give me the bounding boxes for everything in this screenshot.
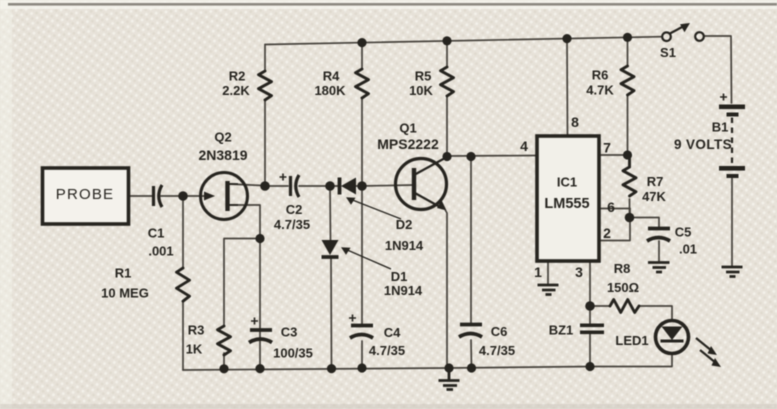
svg-text:10 MEG: 10 MEG <box>101 286 149 301</box>
svg-text:6: 6 <box>607 199 615 215</box>
svg-text:4.7/35: 4.7/35 <box>369 343 405 358</box>
svg-text:180K: 180K <box>314 83 346 98</box>
svg-text:47K: 47K <box>642 189 666 204</box>
svg-text:B1: B1 <box>712 120 729 135</box>
svg-text:4: 4 <box>520 138 528 154</box>
svg-text:C4: C4 <box>384 325 401 340</box>
svg-text:IC1: IC1 <box>557 175 577 190</box>
svg-text:1N914: 1N914 <box>384 283 423 298</box>
svg-text:4.7/35: 4.7/35 <box>479 343 515 358</box>
svg-text:1N914: 1N914 <box>385 238 424 253</box>
svg-text:BZ1: BZ1 <box>549 323 574 338</box>
svg-text:R6: R6 <box>592 68 609 83</box>
svg-text:.001: .001 <box>148 244 173 259</box>
svg-text:Q1: Q1 <box>399 121 416 136</box>
svg-text:4.7/35: 4.7/35 <box>274 217 310 232</box>
svg-text:R1: R1 <box>115 266 132 281</box>
svg-text:9 VOLTS: 9 VOLTS <box>674 137 732 152</box>
svg-text:150Ω: 150Ω <box>607 280 639 295</box>
svg-text:C1: C1 <box>148 226 165 241</box>
svg-text:R7: R7 <box>647 174 664 189</box>
svg-text:1: 1 <box>534 264 542 280</box>
svg-text:2N3819: 2N3819 <box>198 147 247 163</box>
svg-text:MPS2222: MPS2222 <box>377 136 439 152</box>
svg-text:PROBE: PROBE <box>56 186 115 203</box>
svg-text:3: 3 <box>575 264 583 280</box>
svg-text:D2: D2 <box>396 217 413 232</box>
svg-text:D1: D1 <box>391 269 408 284</box>
svg-text:S1: S1 <box>660 45 676 60</box>
svg-text:C5: C5 <box>675 225 692 240</box>
svg-text:8: 8 <box>571 114 579 130</box>
svg-text:C3: C3 <box>281 325 298 340</box>
svg-text:R4: R4 <box>323 69 340 84</box>
svg-text:LED1: LED1 <box>615 333 648 348</box>
svg-text:R3: R3 <box>188 323 205 338</box>
svg-text:1K: 1K <box>186 342 203 357</box>
svg-text:2.2K: 2.2K <box>222 83 250 98</box>
svg-text:4.7K: 4.7K <box>586 83 614 98</box>
svg-text:2: 2 <box>603 225 611 241</box>
svg-text:R5: R5 <box>415 69 432 84</box>
svg-text:LM555: LM555 <box>544 196 589 212</box>
svg-text:C6: C6 <box>491 324 508 339</box>
svg-text:R8: R8 <box>614 261 631 276</box>
svg-text:100/35: 100/35 <box>273 346 313 361</box>
svg-text:C2: C2 <box>286 202 303 217</box>
svg-text:R2: R2 <box>229 69 246 84</box>
svg-text:Q2: Q2 <box>214 130 231 145</box>
svg-text:.01: .01 <box>679 242 697 257</box>
svg-text:7: 7 <box>603 140 611 156</box>
svg-text:10K: 10K <box>409 83 433 98</box>
